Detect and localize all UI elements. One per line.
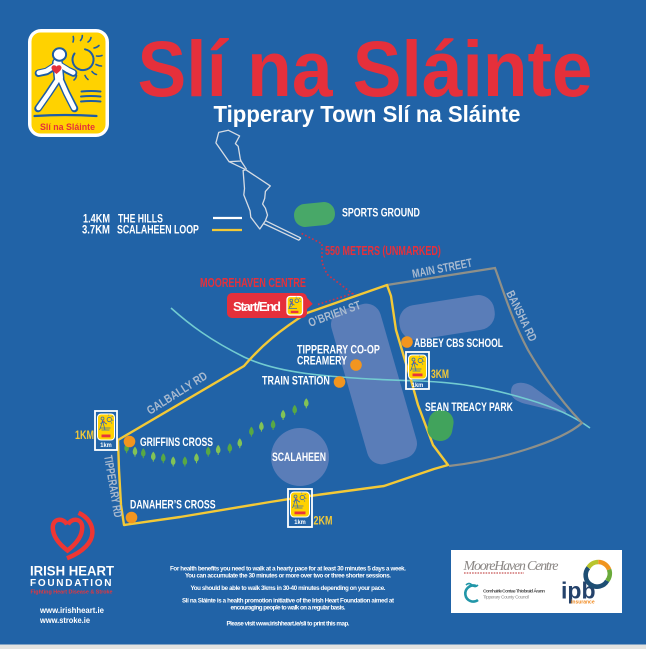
svg-text:2KM: 2KM	[314, 514, 333, 528]
svg-text:Please visit www.irishheart.ie: Please visit www.irishheart.ie/sli to pr…	[227, 621, 350, 628]
svg-text:3KM: 3KM	[431, 369, 449, 382]
svg-text:Slí na Sláinte: Slí na Sláinte	[138, 24, 593, 113]
svg-text:550 METERS (UNMARKED): 550 METERS (UNMARKED)	[325, 245, 441, 259]
svg-text:CREAMERY: CREAMERY	[297, 354, 347, 368]
svg-text:ABBEY CBS SCHOOL: ABBEY CBS SCHOOL	[414, 338, 503, 351]
svg-text:1km: 1km	[294, 519, 306, 526]
svg-text:You should be able to walk 3km: You should be able to walk 3kms in 30-40…	[191, 585, 386, 592]
svg-text:For health benefits you need t: For health benefits you need to walk at …	[170, 566, 406, 573]
svg-text:MooreHaven Centre: MooreHaven Centre	[463, 559, 559, 574]
svg-text:Slí na Sláinte: Slí na Sláinte	[40, 122, 95, 132]
svg-text:GRIFFINS CROSS: GRIFFINS CROSS	[140, 437, 213, 450]
svg-text:Tipperary County Council: Tipperary County Council	[483, 595, 529, 601]
svg-text:insurance: insurance	[571, 600, 595, 606]
svg-text:SCALAHEEN: SCALAHEEN	[272, 452, 326, 465]
svg-text:Slí na Sláinte is a health pro: Slí na Sláinte is a health promotion ini…	[182, 598, 394, 605]
svg-text:www.stroke.ie: www.stroke.ie	[39, 615, 90, 625]
svg-text:Tipperary Town Slí na Sláinte: Tipperary Town Slí na Sláinte	[214, 101, 521, 127]
svg-text:You can accumulate the 30 minu: You can accumulate the 30 minutes or mor…	[185, 573, 391, 580]
svg-text:1km: 1km	[100, 442, 112, 449]
svg-text:SCALAHEEN LOOP: SCALAHEEN LOOP	[117, 223, 199, 237]
svg-text:DANAHER’S CROSS: DANAHER’S CROSS	[130, 498, 216, 512]
svg-text:encouraging people to walk on: encouraging people to walk on a regular …	[231, 605, 346, 612]
svg-text:SPORTS GROUND: SPORTS GROUND	[342, 206, 420, 220]
svg-text:3.7KM: 3.7KM	[82, 224, 110, 237]
svg-text:IRISH HEART: IRISH HEART	[30, 564, 115, 579]
svg-text:Comhairle Contae Thiobraid Ára: Comhairle Contae Thiobraid Árann	[483, 588, 545, 595]
svg-text:FOUNDATION: FOUNDATION	[30, 578, 113, 589]
svg-text:www.irishheart.ie: www.irishheart.ie	[39, 605, 104, 615]
svg-text:1km: 1km	[412, 382, 424, 389]
svg-text:TRAIN STATION: TRAIN STATION	[262, 374, 330, 388]
svg-text:Start/End: Start/End	[233, 299, 281, 314]
svg-text:Fighting Heart Disease & Strok: Fighting Heart Disease & Stroke	[31, 590, 113, 596]
svg-text:SEAN TREACY PARK: SEAN TREACY PARK	[425, 402, 513, 415]
svg-text:1KM: 1KM	[75, 429, 94, 443]
svg-text:MOOREHAVEN CENTRE: MOOREHAVEN CENTRE	[200, 277, 306, 291]
